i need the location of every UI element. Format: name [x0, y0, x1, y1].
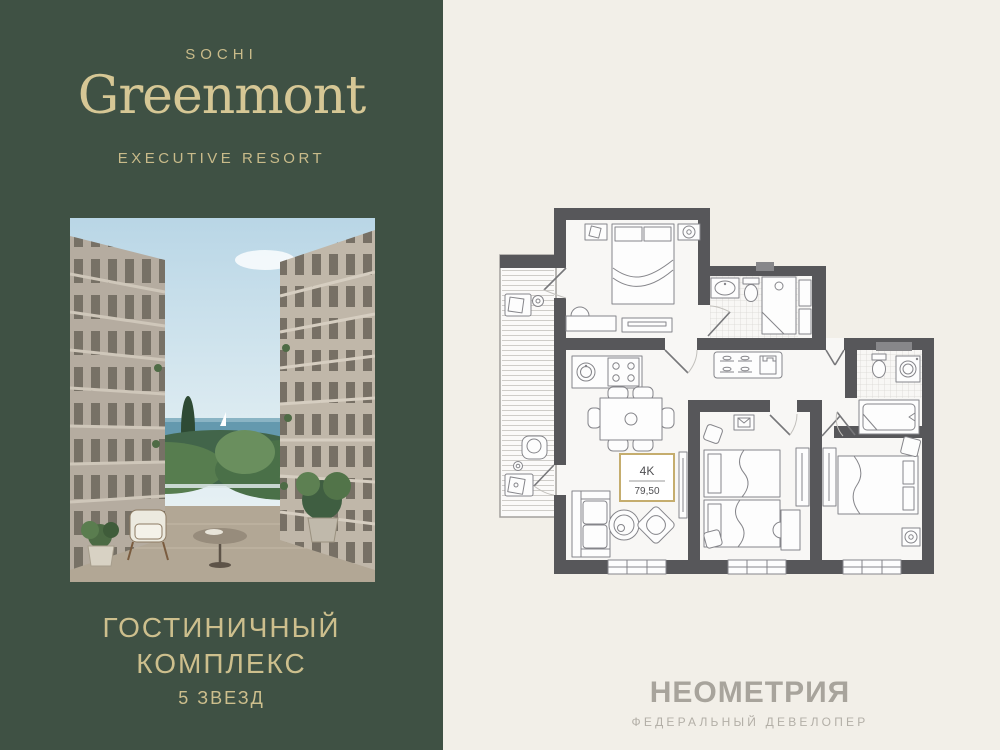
kitchen-icon [572, 356, 642, 388]
wardrobe-icon [796, 448, 809, 506]
shower-icon [762, 277, 796, 334]
bathtub-icon [859, 400, 919, 434]
single-bed-icon [704, 450, 780, 497]
wardrobe-icon [714, 352, 782, 378]
courtyard-photo [70, 218, 375, 582]
wardrobe-icon [823, 448, 836, 506]
toilet-icon [743, 278, 759, 302]
developer-logo: НЕОМЕТРИЯ ФЕДЕРАЛЬНЫЙ ДЕВЕЛОПЕР [565, 676, 935, 729]
complex-type-line2: КОМПЛЕКС [0, 646, 443, 682]
double-bed-icon [612, 224, 674, 304]
developer-subtitle: ФЕДЕРАЛЬНЫЙ ДЕВЕЛОПЕР [565, 715, 935, 729]
tv-icon [679, 452, 687, 518]
tv-console-icon [622, 318, 672, 332]
city-label: SOCHI [0, 46, 443, 63]
sink-icon [711, 278, 739, 298]
brand-panel: SOCHI Greenmont EXECUTIVE RESORT [0, 0, 443, 750]
double-bed-icon [838, 456, 918, 514]
windows [608, 560, 901, 574]
complex-type-line1: ГОСТИНИЧНЫЙ [0, 610, 443, 646]
toilet-icon [872, 354, 886, 378]
pouf-icon [609, 510, 639, 540]
window-icon [728, 560, 786, 574]
glass-railing [160, 484, 285, 488]
lamp-icon [678, 224, 700, 240]
window-icon [843, 560, 901, 574]
brand-tagline: EXECUTIVE RESORT [0, 150, 443, 167]
sofa-icon [572, 491, 610, 557]
complex-type: ГОСТИНИЧНЫЙ КОМПЛЕКС [0, 610, 443, 682]
unit-type-text: 4K [640, 464, 655, 478]
poster-page: { "left_panel": { "bg_color": "#3f5144",… [0, 0, 1000, 750]
stars-label: 5 ЗВЕЗД [0, 688, 443, 709]
washer-icon [896, 356, 920, 382]
nightstand-icon [734, 415, 754, 430]
floor-plan: 4K 79,50 [482, 198, 942, 590]
nightstand-icon [585, 224, 607, 240]
unit-area-text: 79,50 [634, 486, 659, 497]
unit-label: 4K 79,50 [620, 454, 674, 501]
balcony-sink-icon [505, 474, 533, 496]
nightstand-icon [900, 436, 921, 457]
brand-title: Greenmont [0, 66, 443, 126]
lamp-icon [902, 528, 920, 546]
developer-name: НЕОМЕТРИЯ [565, 676, 935, 710]
chair-icon [703, 529, 723, 549]
window-icon [608, 560, 666, 574]
